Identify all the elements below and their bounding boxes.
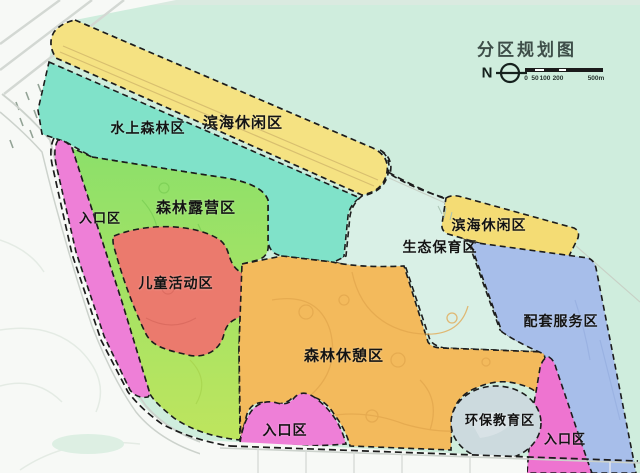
scale-segment — [545, 68, 558, 72]
label-forest-camping: 森林露营区 — [156, 197, 236, 218]
north-label: N — [482, 65, 493, 82]
label-entrance-bottom: 入口区 — [263, 420, 308, 440]
scale-segment — [567, 68, 603, 72]
pond-patch — [52, 434, 124, 454]
label-eco-education: 环保教育区 — [465, 410, 535, 429]
map-title: 分区规划图 — [477, 36, 577, 61]
label-coastal-leisure-top: 滨海休闲区 — [203, 112, 283, 133]
scale-tick: 0 — [524, 75, 528, 82]
label-water-forest: 水上森林区 — [111, 118, 186, 138]
scale-bar: 0 50 100 200 500m — [525, 68, 605, 86]
label-coastal-leisure-right: 滨海休闲区 — [452, 215, 527, 235]
scale-segment — [534, 68, 545, 72]
scale-tick: 200 — [553, 75, 564, 82]
scale-tick: 100 — [540, 75, 551, 82]
scale-end-label: 500m — [588, 75, 605, 82]
zoning-map-canvas: 滨海休闲区 水上森林区 森林露营区 入口区 儿童活动区 生态保育区 滨海休闲区 … — [0, 0, 640, 473]
scale-tick: 50 — [531, 75, 538, 82]
scale-segment — [558, 68, 567, 72]
label-entrance-right: 入口区 — [544, 429, 586, 448]
label-entrance-left: 入口区 — [79, 208, 121, 227]
label-eco-conservation: 生态保育区 — [403, 237, 478, 257]
scale-segment — [525, 68, 534, 72]
label-children-activity: 儿童活动区 — [139, 273, 214, 293]
label-forest-rest: 森林休憩区 — [304, 345, 384, 366]
label-support-services: 配套服务区 — [524, 311, 599, 331]
